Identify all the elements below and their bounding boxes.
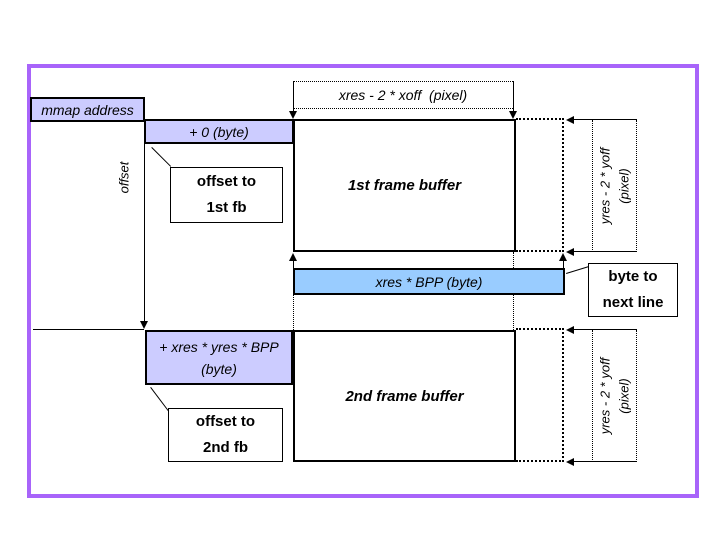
byte-to-next-line-line2: next line <box>603 290 664 316</box>
xres-dimension-text: xres - 2 * xoff (pixel) <box>339 87 467 103</box>
offset-to-1st-fb-line2: 1st fb <box>206 195 246 221</box>
fb2-dim-top-dotted <box>516 328 564 330</box>
second-frame-buffer-box: 2nd frame buffer <box>293 330 516 462</box>
offset-to-2nd-fb-label: offset to 2nd fb <box>168 408 283 462</box>
offset-extent-line <box>144 144 145 322</box>
second-fb-offset-line1: + xres * yres * BPP <box>159 336 278 358</box>
bar-left-arrow-stem <box>293 259 294 268</box>
xres-bpp-text: xres * BPP (byte) <box>376 274 483 290</box>
bar-to-fb2-left-dotted <box>293 295 294 330</box>
offset-arrow-down-icon <box>140 321 148 329</box>
offset-axis-label: offset <box>106 147 141 207</box>
yres-dim-bottom-line1: yres - 2 * yoff <box>596 358 615 435</box>
fb2-dim-top-arrow-icon <box>566 326 574 334</box>
xres-dim-left-line <box>293 81 294 112</box>
fb1-dim-top-arrow-icon <box>566 116 574 124</box>
fb1-dim-bottom-arrow-icon <box>566 248 574 256</box>
second-frame-buffer-text: 2nd frame buffer <box>345 388 463 405</box>
fb1-dim-bottom-dotted <box>516 250 564 252</box>
xres-bpp-bar: xres * BPP (byte) <box>293 268 565 295</box>
offset-zero-text: + 0 (byte) <box>189 124 249 140</box>
second-fb-offset-label: + xres * yres * BPP (byte) <box>145 330 293 385</box>
byte-to-next-line-line1: byte to <box>608 264 657 290</box>
fb1-dim-vertical-dotted <box>562 118 564 252</box>
fb1-dim-top-dotted <box>516 118 564 120</box>
second-fb-baseline <box>33 329 144 330</box>
offset-to-1st-fb-label: offset to 1st fb <box>170 167 283 223</box>
yres-dim-bottom-text: yres - 2 * yoff (pixel) <box>596 358 634 435</box>
yres-dim-top-text: yres - 2 * yoff (pixel) <box>596 148 634 225</box>
yres-dim-top-line1: yres - 2 * yoff <box>596 148 615 225</box>
bar-right-arrow-stem <box>563 259 564 268</box>
xres-dim-left-arrow-icon <box>289 111 297 119</box>
yres-dimension-label-top: yres - 2 * yoff (pixel) <box>592 120 637 252</box>
offset-axis-text: offset <box>114 161 133 193</box>
framebuffer-memory-layout-diagram: mmap address + 0 (byte) offset offset to… <box>0 0 720 540</box>
offset-to-1st-fb-line1: offset to <box>197 169 256 195</box>
offset-zero-label: + 0 (byte) <box>144 119 294 144</box>
yres-dim-bottom-line2: (pixel) <box>615 358 634 435</box>
byte-to-next-line-label: byte to next line <box>588 263 678 317</box>
mmap-address-label: mmap address <box>30 97 145 122</box>
first-frame-buffer-box: 1st frame buffer <box>293 119 516 252</box>
xres-dimension-label: xres - 2 * xoff (pixel) <box>293 81 513 109</box>
fb1-to-bar-dotted <box>513 252 514 268</box>
fb2-dim-bottom-arrow-icon <box>566 458 574 466</box>
fb2-dim-vertical-dotted <box>562 328 564 462</box>
mmap-address-text: mmap address <box>41 102 134 118</box>
offset-to-2nd-fb-line1: offset to <box>196 409 255 435</box>
second-fb-offset-line2: (byte) <box>201 358 237 380</box>
fb2-dim-bottom-dotted <box>516 460 564 462</box>
xres-dim-right-line <box>513 81 514 112</box>
first-frame-buffer-text: 1st frame buffer <box>348 177 461 194</box>
yres-dim-top-line2: (pixel) <box>615 148 634 225</box>
bar-to-fb2-right-dotted <box>513 295 514 330</box>
yres-dimension-label-bottom: yres - 2 * yoff (pixel) <box>592 330 637 462</box>
offset-to-2nd-fb-line2: 2nd fb <box>203 435 248 461</box>
